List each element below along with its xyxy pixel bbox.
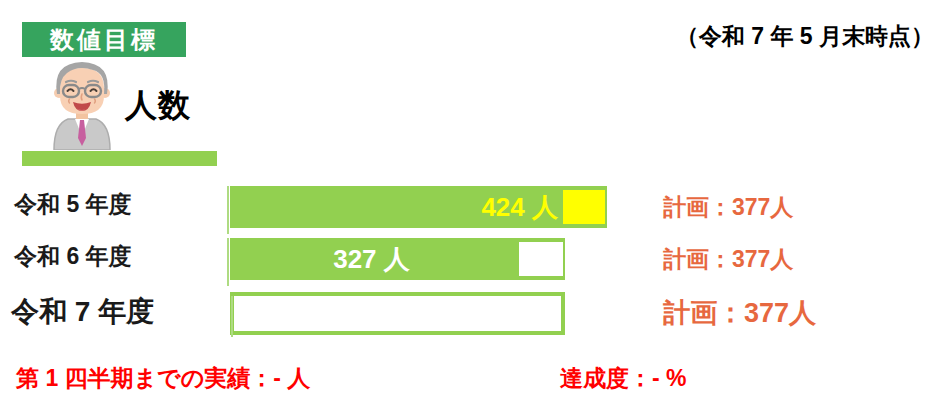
badge-label: 数値目標 xyxy=(50,24,158,56)
numeric-target-badge: 数値目標 xyxy=(22,22,186,57)
plan-label-reiwa5: 計画：377人 xyxy=(663,192,793,223)
under-plan-gap-box xyxy=(519,242,563,276)
bar-value-label: 424 人 xyxy=(481,190,558,225)
bar-reiwa7-empty xyxy=(230,292,565,335)
over-plan-box xyxy=(563,190,605,224)
metric-title: 人数 xyxy=(125,84,191,128)
year-label-reiwa7: 令和 7 年度 xyxy=(11,293,154,331)
as-of-date-note: （令和 7 年 5 月末時点） xyxy=(676,21,934,52)
elderly-man-avatar-icon xyxy=(46,58,118,150)
kpi-slide: 数値目標 （令和 7 年 5 月末時点） 人数 令和 5 年度 令和 6 年度 … xyxy=(0,0,940,418)
plan-label-reiwa7: 計画：377人 xyxy=(663,295,816,331)
green-underline-strip xyxy=(22,151,217,166)
achievement-rate-text: 達成度：- % xyxy=(560,363,687,394)
year-label-reiwa6: 令和 6 年度 xyxy=(14,241,132,272)
quarter-result-text: 第 1 四半期までの実績：- 人 xyxy=(16,363,310,394)
year-label-reiwa5: 令和 5 年度 xyxy=(14,189,132,220)
bar-reiwa6: 327 人 xyxy=(230,238,565,280)
bar-reiwa5: 424 人 xyxy=(230,186,607,228)
bar-value-label: 327 人 xyxy=(230,242,513,277)
plan-label-reiwa6: 計画：377人 xyxy=(663,244,793,275)
